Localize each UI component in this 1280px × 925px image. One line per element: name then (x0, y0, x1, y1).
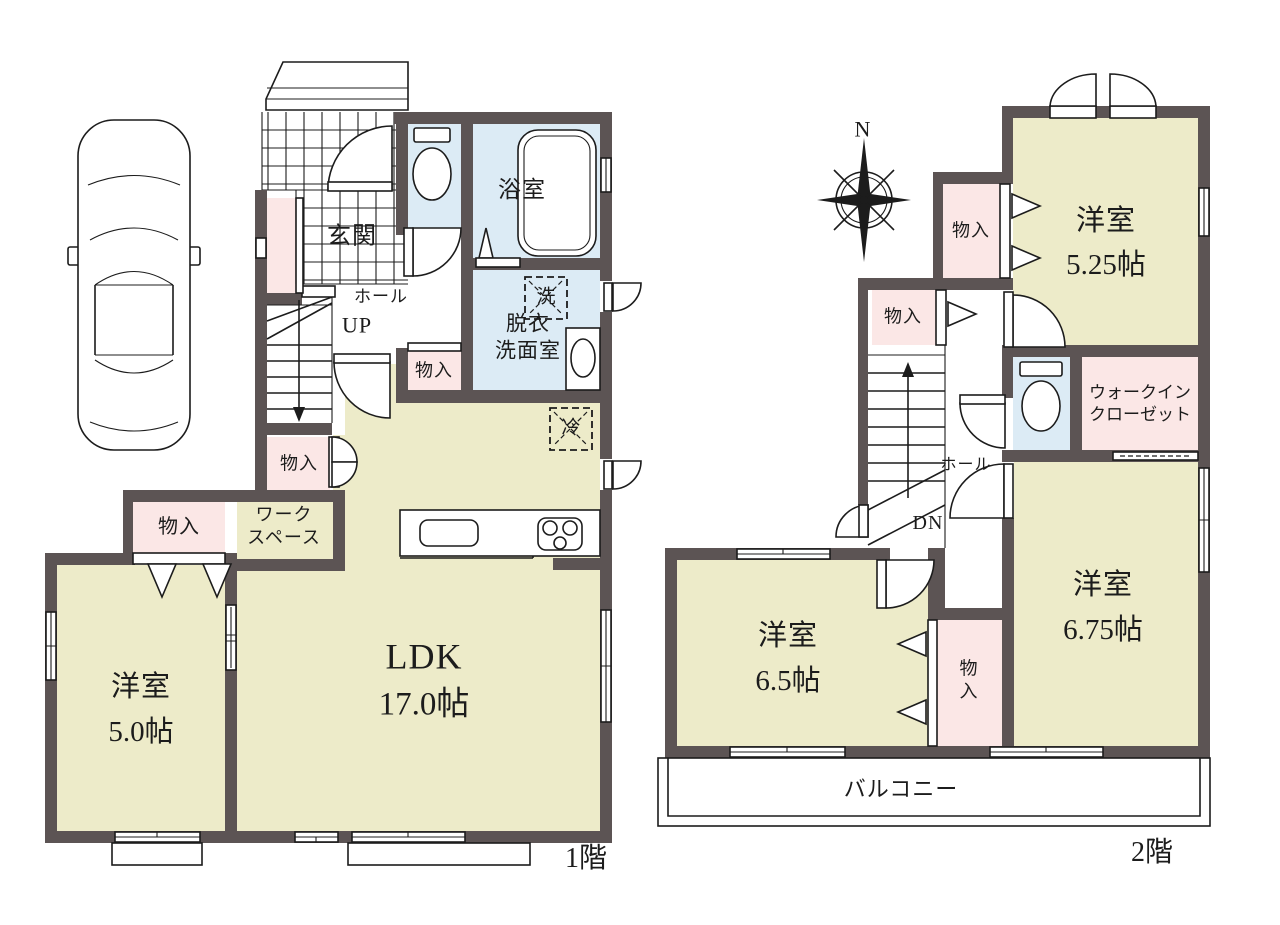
room-label-bedroom65: 洋室 (758, 618, 818, 656)
room-size-bedroom675: 6.75帖 (1063, 612, 1143, 650)
toilet-door (413, 228, 461, 276)
storage3-label-2f: 物 入 (960, 658, 979, 705)
floor1-label: 1階 (565, 841, 607, 877)
fridge-symbol: 冷 (561, 417, 580, 442)
room-label-bedroom50: 洋室 (111, 669, 171, 707)
stairs-dn-label: DN (913, 510, 944, 536)
storage-label-stairs-1f: 物入 (280, 452, 318, 475)
balcony-label: バルコニー (844, 776, 959, 805)
room-label-bathroom: 浴室 (498, 175, 546, 205)
compass-north-label: N (855, 116, 872, 145)
car-icon (68, 120, 200, 450)
back-door-dressing (600, 281, 641, 312)
storage-label-bedroom-1f: 物入 (158, 514, 200, 540)
kitchen-counter (400, 510, 600, 558)
room-label-bedroom675: 洋室 (1073, 567, 1133, 605)
storage1-label-2f: 物入 (952, 219, 990, 242)
room-size-bedroom525: 5.25帖 (1066, 247, 1146, 285)
storage2-sliding (936, 290, 976, 345)
room-size-bedroom65: 6.5帖 (755, 663, 820, 701)
kitchen-sink (420, 520, 478, 546)
room-label-wic: ウォークイン クローゼット (1089, 382, 1191, 426)
room-label-hall-2f: ホール (940, 456, 991, 477)
storage2-label-2f: 物入 (884, 305, 922, 328)
washbasin (566, 328, 600, 390)
storage-label-hall-1f: 物入 (415, 359, 453, 382)
room-label-ldk: LDK (386, 634, 463, 681)
hall-ldk-door (334, 362, 390, 418)
toilet2-fixture (1020, 362, 1062, 431)
room-size-ldk: 17.0帖 (379, 684, 470, 727)
floorplan-canvas: 玄関 ホール UP 浴室 脱衣 洗面室 洗 冷 物入 物入 物入 ワーク スペー… (0, 0, 1280, 925)
floorplan-linework (0, 0, 1280, 925)
room-label-hall-1f: ホール (354, 286, 408, 308)
floor2-label: 2階 (1131, 835, 1173, 871)
stairs-up-label: UP (342, 312, 372, 341)
washer-symbol: 洗 (536, 286, 555, 311)
floor1-stairs (267, 295, 332, 423)
toilet-fixture (413, 128, 451, 200)
toilet2-door (960, 395, 1005, 448)
room-label-workspace: ワーク スペース (247, 504, 321, 551)
stove (538, 518, 582, 550)
compass-icon (817, 138, 911, 262)
entrance-door (328, 126, 392, 190)
bedroom-sliding-door (226, 605, 236, 670)
room-label-entrance: 玄関 (327, 221, 377, 252)
room-label-bedroom525: 洋室 (1076, 203, 1136, 241)
back-door-ldk (600, 459, 641, 490)
floor2-plan (658, 74, 1210, 826)
stairs-door (836, 505, 868, 537)
room-label-dressing: 脱衣 洗面室 (495, 311, 561, 366)
room-size-bedroom50: 5.0帖 (108, 714, 173, 752)
